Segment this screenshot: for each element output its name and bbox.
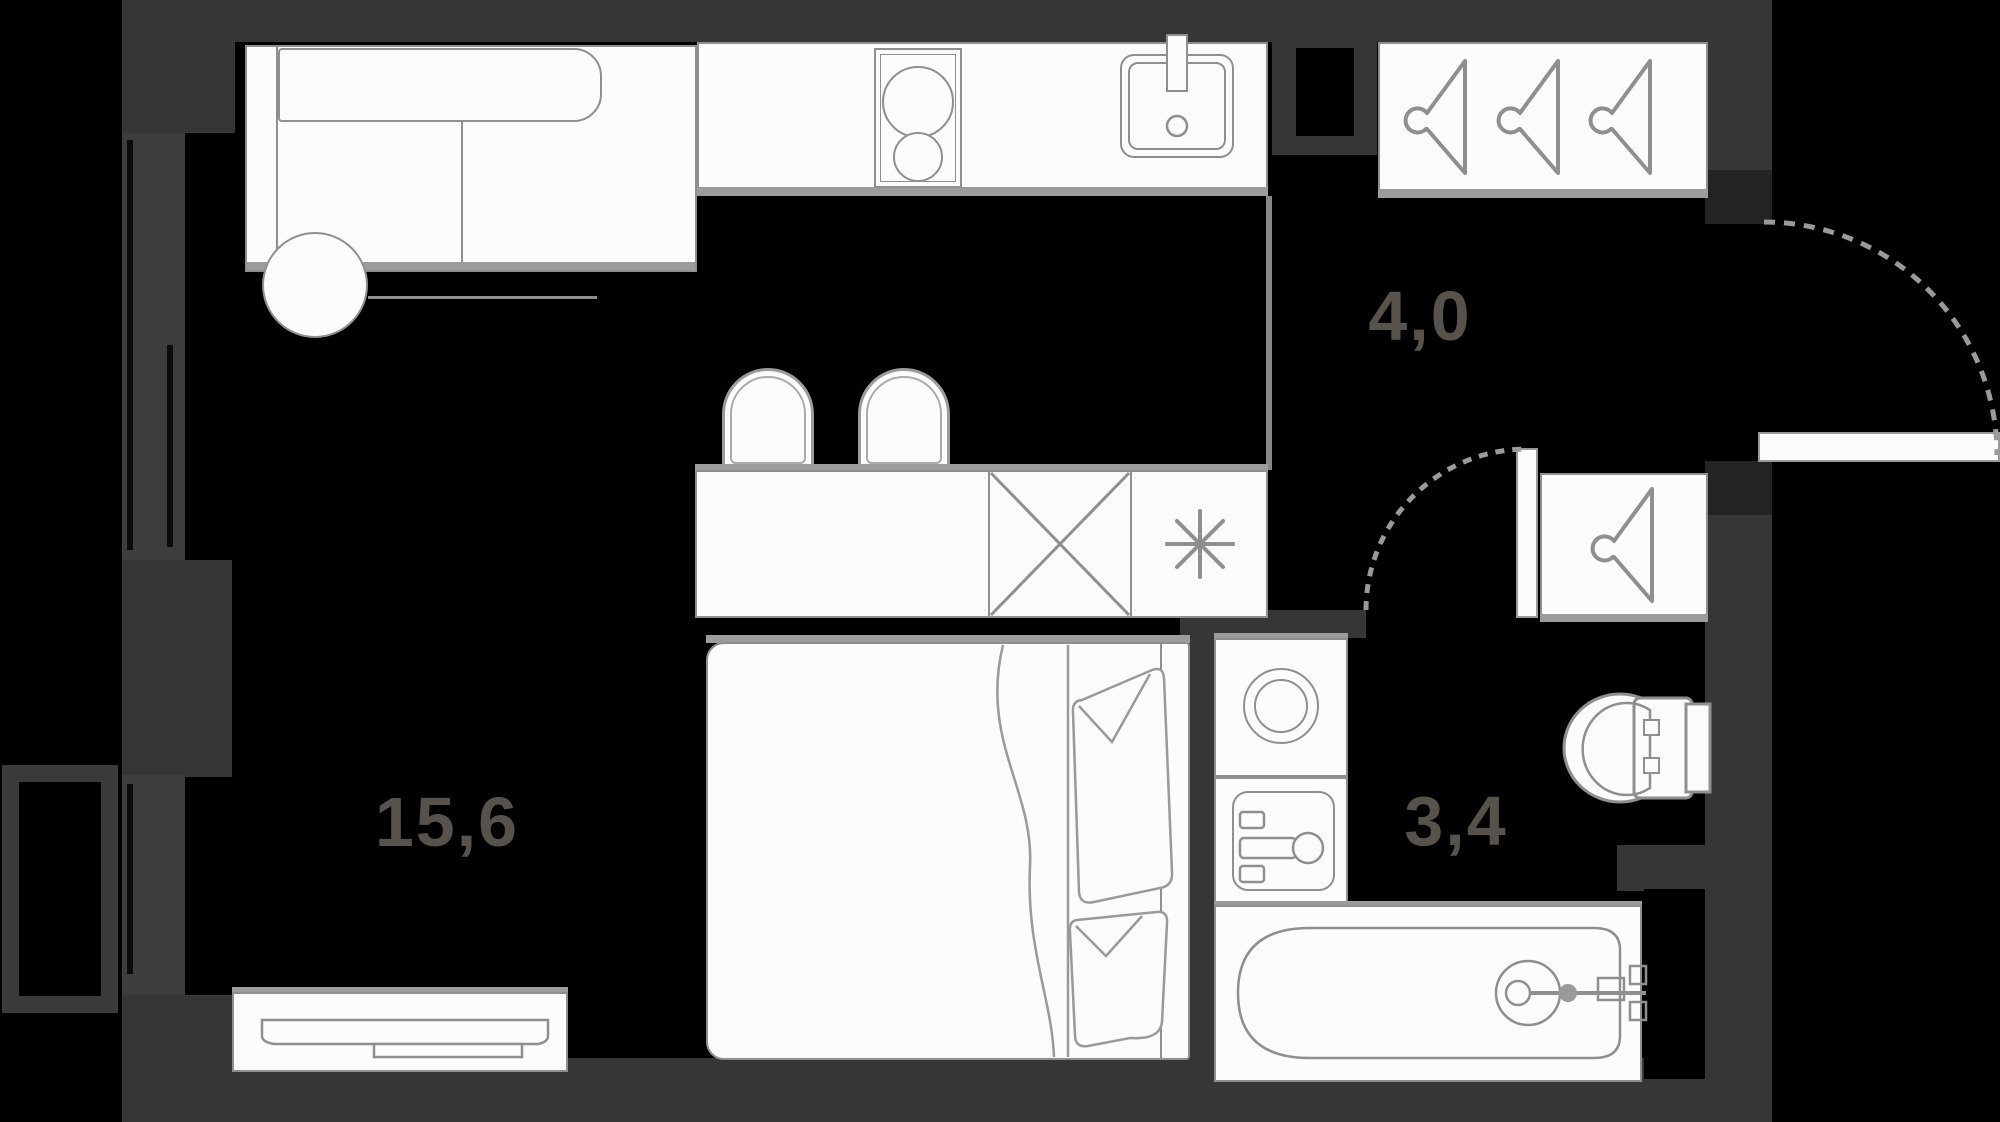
window-glazing-line	[167, 345, 173, 547]
bar-counter	[695, 470, 1268, 618]
bathroom-door-leaf	[1516, 448, 1538, 618]
bed	[706, 642, 1190, 1060]
round-table	[262, 232, 368, 338]
entrance-jamb-top	[1705, 170, 1772, 224]
sofa-armrest-line	[276, 45, 278, 272]
kitchen-counter-shadow	[697, 187, 1268, 196]
table-guide-line	[368, 296, 597, 299]
bathroom-door-arc	[1366, 449, 1527, 610]
chair-inner	[866, 376, 942, 464]
closet	[1540, 473, 1708, 617]
entrance-jamb-bottom	[1705, 461, 1772, 515]
bathroom-shaft	[1644, 889, 1705, 1079]
chair	[722, 368, 814, 472]
washbasin	[1232, 791, 1335, 891]
floor-plan: 15,6 4,0 3,4	[0, 0, 2000, 1122]
toilet	[1564, 694, 1710, 802]
washer-drum-inner	[1254, 679, 1308, 733]
wall-left-mid	[122, 560, 232, 777]
tv-console	[232, 992, 568, 1072]
closet-shadow	[1540, 614, 1708, 622]
bed-headboard-line	[1160, 644, 1162, 1058]
wall-top-left-block	[122, 0, 235, 133]
chair	[858, 368, 950, 472]
window-glazing-line	[127, 140, 133, 550]
room-area-label-bathroom: 3,4	[1404, 781, 1507, 861]
sofa-backrest	[278, 48, 602, 122]
wardrobe-shadow	[1378, 189, 1708, 198]
room-area-label-living: 15,6	[375, 782, 519, 862]
stove-burner-large	[882, 66, 954, 138]
sofa-cushion-line	[461, 122, 463, 264]
vent-shaft	[1296, 48, 1354, 136]
entrance-opening	[1705, 224, 1772, 461]
washing-machine	[988, 470, 1132, 618]
chair-inner	[730, 376, 806, 464]
entrance-door-arc	[1764, 222, 1997, 455]
wall-bottom-left-block	[122, 995, 232, 1122]
window-glazing-line	[127, 784, 133, 974]
wardrobe	[1378, 42, 1708, 192]
stove-burner-small	[893, 132, 943, 182]
kitchen-faucet	[1166, 34, 1188, 92]
balcony-basket	[2, 765, 118, 1013]
room-area-label-hallway: 4,0	[1368, 276, 1471, 356]
partition-line	[1266, 196, 1272, 470]
bathtub	[1214, 905, 1642, 1082]
shaft-wall-block	[1617, 845, 1705, 891]
wall-top	[122, 0, 1772, 42]
entrance-door-leaf	[1758, 432, 2000, 462]
